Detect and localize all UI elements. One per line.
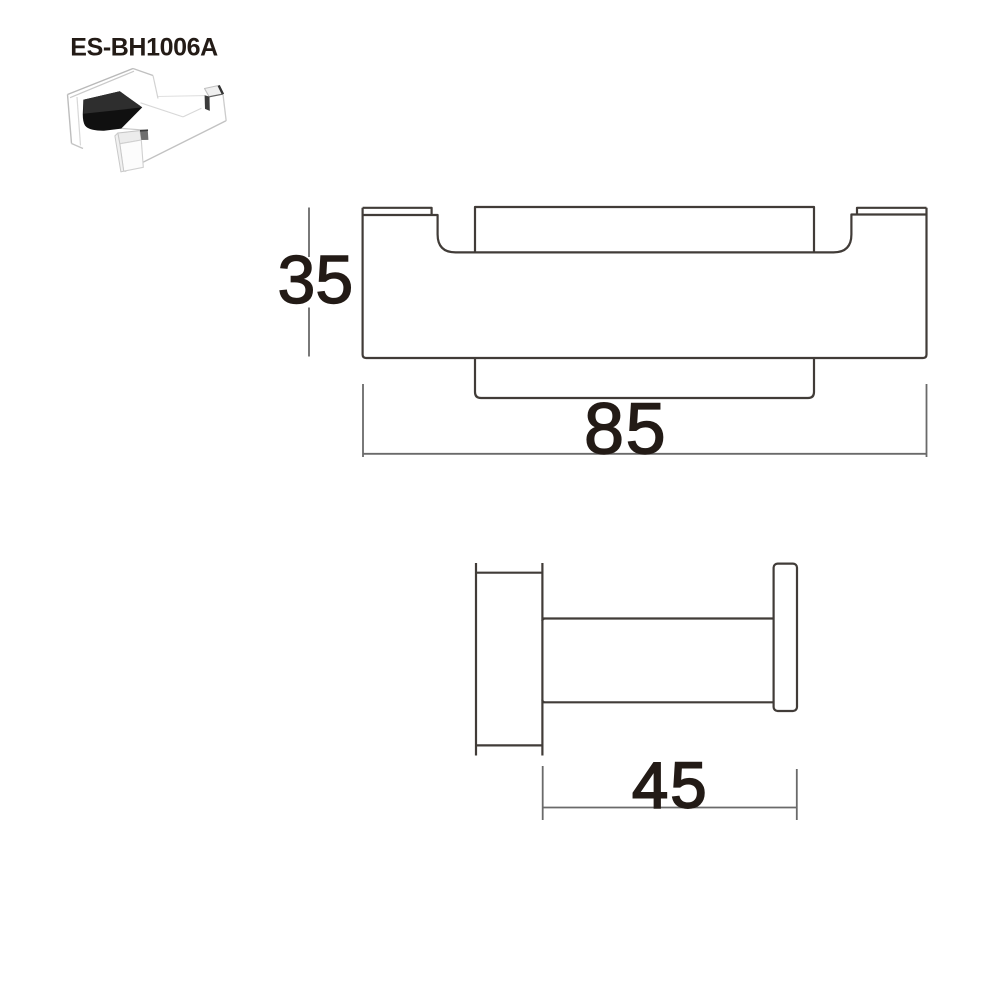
svg-text:ES-BH1006A: ES-BH1006A: [70, 34, 218, 62]
svg-text:85: 85: [584, 390, 667, 470]
svg-text:35: 35: [278, 242, 354, 318]
svg-text:45: 45: [632, 749, 709, 822]
